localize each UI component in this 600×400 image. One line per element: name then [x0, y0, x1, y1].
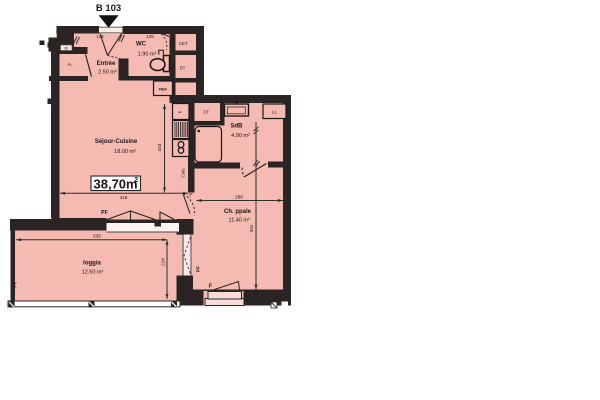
svg-text:Cuis: Cuis — [181, 168, 186, 178]
svg-text:4.90 m²: 4.90 m² — [231, 133, 250, 139]
svg-text:PL: PL — [68, 62, 74, 67]
svg-text:Entrée: Entrée — [97, 61, 116, 67]
svg-text:WC: WC — [136, 41, 147, 47]
svg-text:06: 06 — [64, 47, 68, 51]
svg-text:CET: CET — [179, 41, 188, 46]
svg-text:224: 224 — [160, 258, 165, 266]
svg-text:Séjour-Cuisine: Séjour-Cuisine — [95, 139, 138, 145]
svg-text:PF: PF — [196, 266, 202, 272]
svg-text:12.50 m²: 12.50 m² — [82, 270, 104, 276]
svg-text:F: F — [209, 284, 212, 290]
svg-text:392: 392 — [249, 224, 254, 232]
svg-text:DT: DT — [204, 110, 210, 115]
svg-text:2.50 m²: 2.50 m² — [98, 70, 117, 76]
svg-text:288: 288 — [235, 194, 243, 199]
svg-text:1.90 m²: 1.90 m² — [138, 51, 157, 57]
svg-text:418: 418 — [120, 195, 128, 200]
svg-text:B 103: B 103 — [96, 3, 121, 14]
svg-text:SdB: SdB — [231, 124, 244, 130]
svg-text:E: E — [177, 110, 182, 113]
svg-text:PF: PF — [101, 210, 108, 216]
svg-text:443: 443 — [157, 143, 162, 151]
svg-text:38,70m: 38,70m — [94, 176, 138, 191]
svg-text:2: 2 — [134, 177, 138, 184]
svg-text:PV: PV — [13, 281, 18, 288]
svg-text:128: 128 — [96, 34, 104, 39]
svg-text:18.00 m²: 18.00 m² — [114, 149, 136, 155]
svg-text:DT: DT — [180, 65, 186, 70]
svg-text:LL: LL — [272, 110, 277, 115]
svg-text:11.40 m²: 11.40 m² — [229, 217, 250, 223]
svg-text:539: 539 — [93, 234, 101, 239]
svg-text:Ch. ppale: Ch. ppale — [224, 209, 252, 215]
svg-text:135: 135 — [146, 34, 154, 39]
svg-text:REF: REF — [159, 87, 168, 92]
svg-text:loggia: loggia — [83, 261, 101, 267]
